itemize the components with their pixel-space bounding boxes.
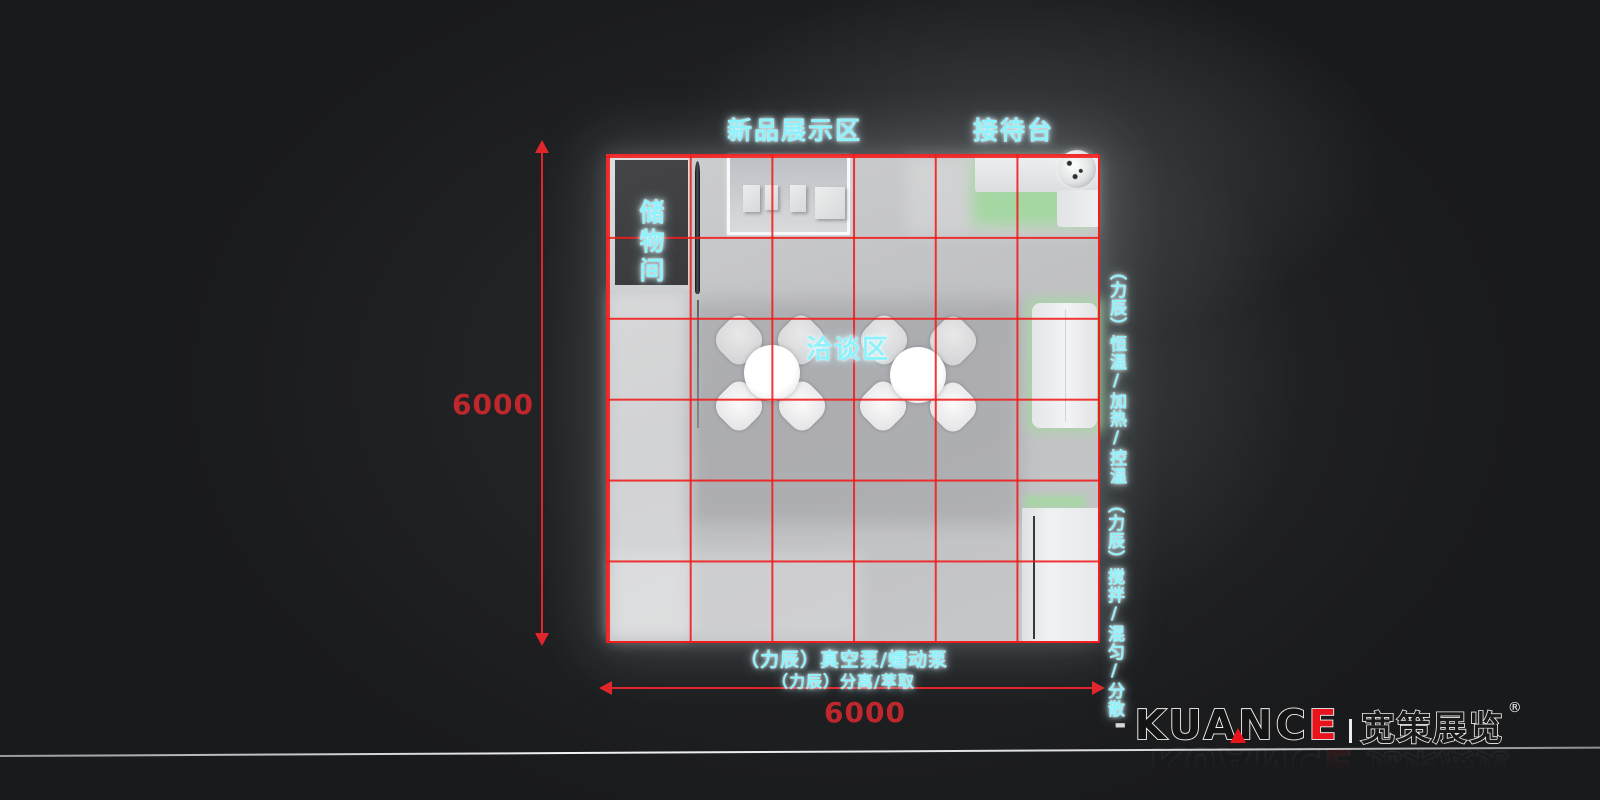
zone-label-display: 新品展示区	[727, 111, 862, 147]
arrow-down-icon	[535, 633, 549, 646]
annotation-right-bottom: （力辰）搅拌/混匀/分散	[1102, 496, 1127, 718]
booth-floor-plan: 储物间 洽谈区	[606, 154, 1100, 643]
zone-label-reception: 接待台	[973, 111, 1054, 147]
annotation-bottom-line2: （力辰）分离/萃取	[772, 668, 915, 692]
registered-trademark-icon: ®	[1508, 700, 1522, 716]
annotation-right-top: （力辰）恒温/加热/控温	[1104, 263, 1129, 485]
dimension-height-value: 6000	[452, 388, 534, 421]
arrow-up-icon	[535, 140, 549, 153]
brand-wordmark: KUANCE	[1134, 705, 1339, 746]
zone-label-meeting: 洽谈区	[806, 329, 890, 366]
dimension-width-value: 6000	[824, 696, 906, 729]
brand-wordmark-black: KUANC	[1134, 701, 1308, 749]
zone-label-storage: 储物间	[632, 199, 668, 286]
arrow-left-icon	[599, 681, 612, 695]
dimension-line-vertical	[541, 147, 543, 639]
logo-dash: -	[1114, 707, 1126, 742]
brand-chinese-name: 宽策展览	[1361, 712, 1505, 746]
logo-triangle-icon	[1230, 728, 1246, 743]
brand-chinese-name-reflection: 宽策展览	[1367, 749, 1511, 783]
red-layout-grid	[606, 154, 1100, 643]
brand-wordmark-red: E	[1309, 701, 1340, 749]
logo-divider	[1349, 719, 1352, 743]
brand-logo: - KUANCE 宽策展览 ®	[1114, 700, 1522, 746]
